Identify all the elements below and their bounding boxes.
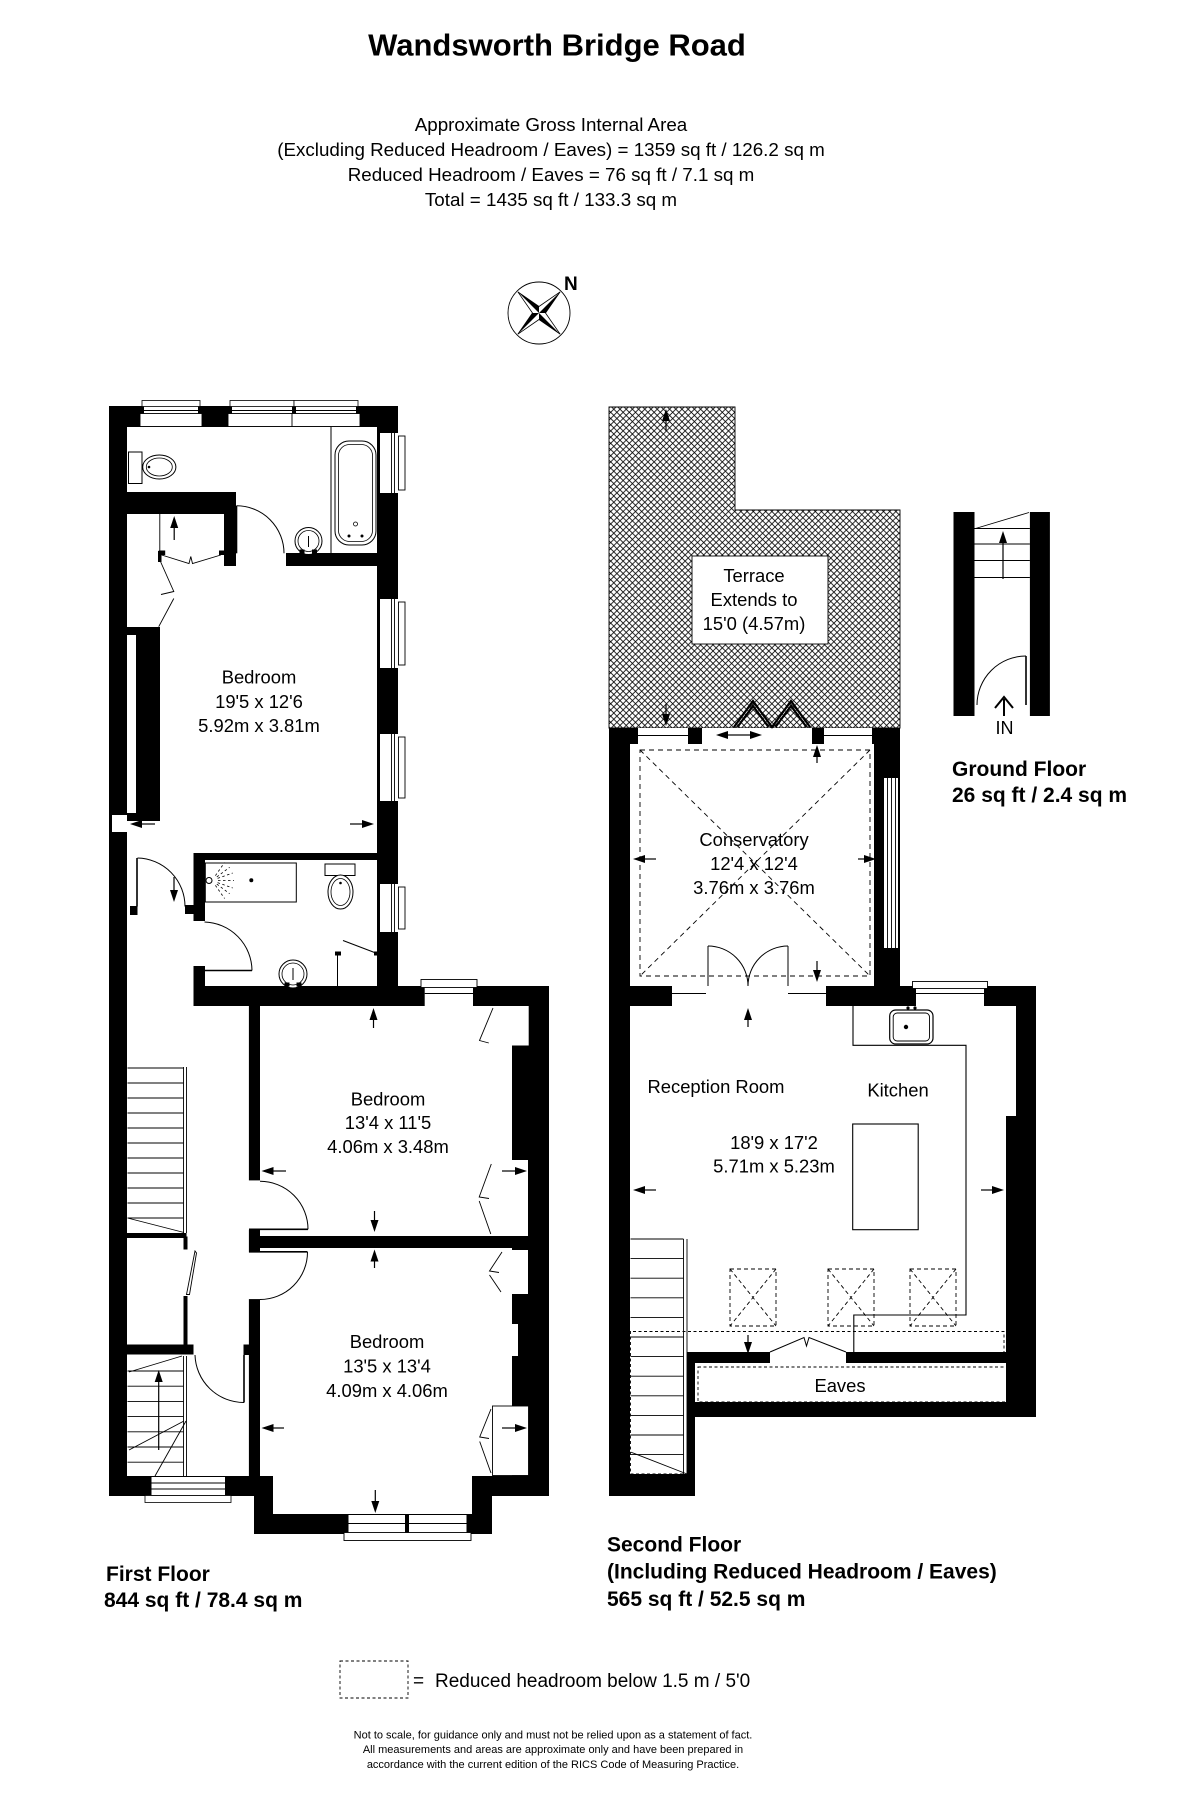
svg-text:13'5 x 13'4: 13'5 x 13'4 <box>343 1356 431 1377</box>
svg-text:13'4 x 11'5: 13'4 x 11'5 <box>345 1112 431 1133</box>
svg-text:5.71m x 5.23m: 5.71m x 5.23m <box>713 1156 835 1177</box>
svg-text:(Including Reduced Headroom /: (Including Reduced Headroom / Eaves) <box>607 1561 997 1584</box>
svg-text:4.06m x 3.48m: 4.06m x 3.48m <box>327 1136 449 1157</box>
svg-text:18'9 x 17'2: 18'9 x 17'2 <box>730 1132 818 1153</box>
svg-text:N: N <box>564 274 578 295</box>
svg-text:15'0 (4.57m): 15'0 (4.57m) <box>703 613 806 634</box>
svg-text:Total = 1435 sq ft / 133.3 sq: Total = 1435 sq ft / 133.3 sq m <box>425 189 677 210</box>
svg-text:Approximate Gross Internal Are: Approximate Gross Internal Area <box>415 114 688 135</box>
svg-text:All measurements and areas are: All measurements and areas are approxima… <box>363 1744 743 1756</box>
svg-text:Extends to: Extends to <box>711 589 798 610</box>
svg-text:844 sq ft / 78.4 sq m: 844 sq ft / 78.4 sq m <box>104 1589 302 1612</box>
svg-text:19'5 x 12'6: 19'5 x 12'6 <box>215 691 303 712</box>
svg-text:565 sq ft / 52.5 sq m: 565 sq ft / 52.5 sq m <box>607 1588 805 1611</box>
svg-text:Bedroom: Bedroom <box>222 667 297 688</box>
svg-text:First Floor: First Floor <box>106 1563 210 1586</box>
svg-text:Kitchen: Kitchen <box>867 1080 928 1101</box>
svg-text:Not to scale, for guidance onl: Not to scale, for guidance only and must… <box>354 1730 753 1742</box>
svg-text:Wandsworth Bridge Road: Wandsworth Bridge Road <box>368 28 746 63</box>
svg-text:Ground Floor: Ground Floor <box>952 758 1086 781</box>
svg-text:3.76m x 3.76m: 3.76m x 3.76m <box>693 877 815 898</box>
svg-text:26 sq ft / 2.4 sq m: 26 sq ft / 2.4 sq m <box>952 784 1127 807</box>
svg-text:Reception Room: Reception Room <box>648 1076 785 1097</box>
svg-text:Reduced Headroom / Eaves = 76: Reduced Headroom / Eaves = 76 sq ft / 7.… <box>348 164 755 185</box>
svg-text:=: = <box>413 1671 424 1692</box>
svg-text:Bedroom: Bedroom <box>350 1331 425 1352</box>
svg-text:Second Floor: Second Floor <box>607 1534 741 1557</box>
svg-text:5.92m x 3.81m: 5.92m x 3.81m <box>198 715 320 736</box>
svg-text:accordance with the current ed: accordance with the current edition of t… <box>367 1759 739 1771</box>
svg-text:Conservatory: Conservatory <box>699 829 809 850</box>
svg-text:12'4 x 12'4: 12'4 x 12'4 <box>710 853 798 874</box>
svg-text:4.09m x 4.06m: 4.09m x 4.06m <box>326 1380 448 1401</box>
svg-text:(Excluding Reduced Headroom /: (Excluding Reduced Headroom / Eaves) = 1… <box>277 139 825 160</box>
svg-text:Eaves: Eaves <box>814 1375 865 1396</box>
svg-text:Bedroom: Bedroom <box>351 1088 426 1109</box>
svg-text:IN: IN <box>996 718 1014 738</box>
svg-text:Reduced headroom below 1.5 m /: Reduced headroom below 1.5 m / 5'0 <box>435 1671 750 1692</box>
svg-text:Terrace: Terrace <box>723 565 784 586</box>
